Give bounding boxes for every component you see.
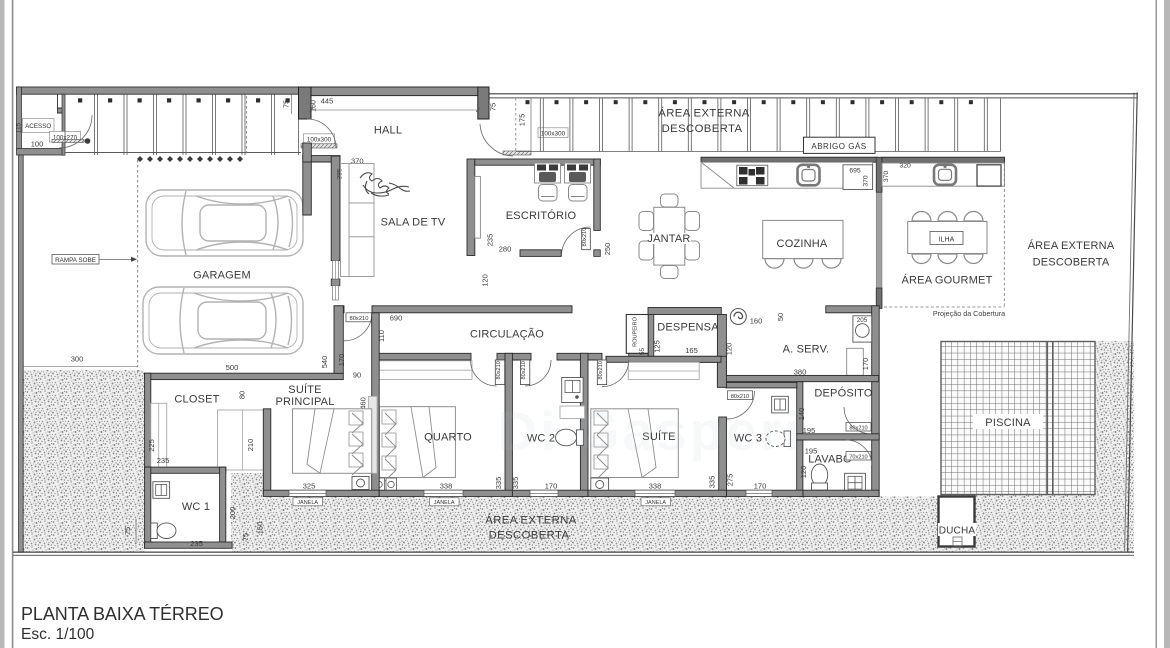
svg-text:WC 1: WC 1 <box>182 501 210 513</box>
svg-text:ABRIGO GÁS: ABRIGO GÁS <box>811 142 866 151</box>
svg-text:338: 338 <box>440 482 453 491</box>
svg-text:JANELA: JANELA <box>297 500 318 506</box>
svg-text:695: 695 <box>849 167 861 174</box>
svg-text:100x300: 100x300 <box>541 130 566 137</box>
svg-text:ROUPEIRO: ROUPEIRO <box>633 316 639 346</box>
svg-text:A. SERV.: A. SERV. <box>783 344 830 356</box>
svg-text:100: 100 <box>31 140 44 149</box>
svg-text:COZINHA: COZINHA <box>777 238 828 250</box>
svg-text:HALL: HALL <box>374 125 402 137</box>
svg-text:ÁREA EXTERNA: ÁREA EXTERNA <box>485 514 577 527</box>
svg-text:CIRCULAÇÃO: CIRCULAÇÃO <box>470 328 544 341</box>
svg-text:80x210: 80x210 <box>598 361 604 379</box>
svg-text:75: 75 <box>489 103 498 111</box>
svg-text:370: 370 <box>863 175 870 187</box>
svg-text:170: 170 <box>545 482 558 491</box>
svg-text:DESCOBERTA: DESCOBERTA <box>662 123 743 135</box>
svg-text:DESPENSA: DESPENSA <box>657 322 719 334</box>
svg-text:205: 205 <box>857 317 868 324</box>
svg-text:90: 90 <box>353 371 361 380</box>
svg-text:DEPÓSITO: DEPÓSITO <box>814 387 872 400</box>
svg-text:75: 75 <box>241 533 250 541</box>
svg-text:70x210: 70x210 <box>849 454 867 460</box>
svg-text:80x210: 80x210 <box>731 394 749 400</box>
svg-text:500: 500 <box>226 363 239 372</box>
svg-text:165: 165 <box>685 346 698 355</box>
svg-text:DUCHA: DUCHA <box>939 526 976 537</box>
svg-text:SUÍTE: SUÍTE <box>288 383 321 396</box>
svg-text:Esc. 1/100: Esc. 1/100 <box>21 626 95 643</box>
svg-text:JANTAR: JANTAR <box>647 233 690 245</box>
svg-text:235: 235 <box>486 234 495 247</box>
svg-text:Di Gasperi: Di Gasperi <box>497 400 802 462</box>
svg-text:690: 690 <box>390 314 403 323</box>
svg-text:160: 160 <box>311 100 318 112</box>
svg-text:SALA DE TV: SALA DE TV <box>381 217 446 229</box>
svg-text:160: 160 <box>750 317 763 326</box>
svg-text:300: 300 <box>71 355 84 364</box>
svg-text:PISCINA: PISCINA <box>985 417 1031 429</box>
svg-text:445: 445 <box>321 97 334 106</box>
svg-text:80x210: 80x210 <box>582 227 588 246</box>
svg-text:125: 125 <box>653 340 662 353</box>
svg-text:ÁREA EXTERNA: ÁREA EXTERNA <box>1028 239 1115 252</box>
svg-text:335: 335 <box>708 476 717 489</box>
svg-text:QUARTO: QUARTO <box>424 432 472 444</box>
svg-text:80x210: 80x210 <box>496 361 502 379</box>
svg-text:235: 235 <box>157 456 170 465</box>
svg-text:80x210: 80x210 <box>349 316 368 322</box>
svg-text:80: 80 <box>238 391 247 399</box>
svg-text:335: 335 <box>511 477 520 490</box>
svg-text:460: 460 <box>359 397 368 410</box>
svg-text:JANELA: JANELA <box>645 500 666 506</box>
svg-text:170: 170 <box>861 358 870 371</box>
svg-text:PRINCIPAL: PRINCIPAL <box>275 396 334 408</box>
svg-text:50: 50 <box>776 313 785 321</box>
svg-text:120: 120 <box>725 343 734 356</box>
svg-text:JANELA: JANELA <box>434 500 455 506</box>
svg-text:ÁREA GOURMET: ÁREA GOURMET <box>901 274 992 287</box>
svg-text:195: 195 <box>805 447 818 456</box>
svg-text:ESCRITÓRIO: ESCRITÓRIO <box>506 209 577 222</box>
svg-text:210: 210 <box>246 439 255 452</box>
svg-text:80x210: 80x210 <box>521 361 527 379</box>
svg-text:370: 370 <box>883 171 890 183</box>
svg-text:335: 335 <box>494 477 503 490</box>
svg-text:RAMPA SOBE: RAMPA SOBE <box>55 257 96 264</box>
svg-text:75: 75 <box>282 100 291 108</box>
svg-text:75: 75 <box>123 527 132 535</box>
svg-text:GARAGEM: GARAGEM <box>193 270 251 282</box>
svg-text:170: 170 <box>754 482 767 491</box>
svg-text:DESCOBERTA: DESCOBERTA <box>1033 257 1110 269</box>
svg-text:120: 120 <box>481 274 490 287</box>
svg-text:250: 250 <box>603 243 612 256</box>
svg-text:195: 195 <box>803 426 816 435</box>
svg-text:ACESSO: ACESSO <box>25 123 51 130</box>
svg-text:275: 275 <box>726 474 735 487</box>
svg-text:235: 235 <box>190 539 203 548</box>
svg-text:ILHA: ILHA <box>939 236 955 243</box>
svg-text:120: 120 <box>799 466 808 479</box>
svg-text:380: 380 <box>794 368 807 377</box>
svg-text:150: 150 <box>256 522 265 535</box>
svg-text:115: 115 <box>16 122 23 133</box>
svg-text:338: 338 <box>649 482 662 491</box>
svg-text:200: 200 <box>228 507 237 520</box>
svg-text:320: 320 <box>900 163 912 170</box>
svg-text:540: 540 <box>320 356 329 369</box>
svg-text:280: 280 <box>499 245 512 254</box>
svg-text:325: 325 <box>303 482 316 491</box>
svg-text:370: 370 <box>351 157 364 166</box>
svg-text:175: 175 <box>518 114 527 127</box>
svg-text:225: 225 <box>147 439 156 452</box>
svg-text:CLOSET: CLOSET <box>174 394 219 406</box>
svg-text:ÁREA EXTERNA: ÁREA EXTERNA <box>658 107 750 120</box>
svg-text:PLANTA BAIXA TÉRREO: PLANTA BAIXA TÉRREO <box>21 604 224 624</box>
svg-text:55: 55 <box>639 348 646 356</box>
svg-text:DESCOBERTA: DESCOBERTA <box>489 530 570 542</box>
svg-text:170: 170 <box>337 354 346 367</box>
svg-text:Projeção da Cobertura: Projeção da Cobertura <box>933 309 1005 318</box>
